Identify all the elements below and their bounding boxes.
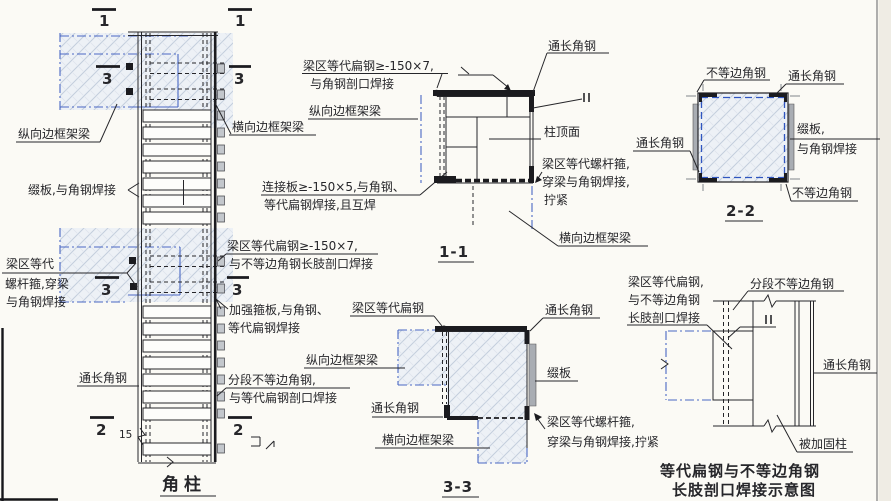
title-text: 2-2 — [726, 202, 756, 220]
label-text: 纵向边框架梁 — [306, 352, 378, 367]
label-text: 纵向边框架梁 — [309, 103, 381, 118]
section-marker-3-top-left: 3 — [102, 70, 112, 88]
label-text: 纵向边框架梁 — [18, 126, 90, 141]
section-marker-1-left: 1 — [99, 12, 109, 30]
title-text-l2: 长肢剖口焊接示意图 — [672, 481, 816, 499]
section-marker-3-mid-left: 3 — [101, 281, 111, 299]
label-text-l2: 等代扁钢焊接,且互焊 — [264, 197, 376, 212]
section-marker-1-right: 1 — [235, 12, 245, 30]
section-marker-2-left: 2 — [96, 421, 106, 439]
label-unequal-angle-bottom: 不等边角钢 — [786, 184, 858, 201]
label-text-l3: 与角钢焊接 — [6, 294, 66, 309]
title-weld-schematic: 等代扁钢与不等边角钢 长肢剖口焊接示意图 — [660, 462, 820, 499]
label-text-l1: 分段不等边角钢, — [228, 372, 316, 387]
dim-15: 15 — [119, 429, 132, 441]
label-text-l1: 梁区等代扁钢, — [628, 274, 704, 289]
label-text-l1: 加强箍板,与角钢、 — [229, 302, 329, 317]
title-text: 角柱 — [162, 474, 206, 495]
label-text-l2: 穿梁与角钢焊接,拧紧 — [547, 434, 659, 449]
label-text: 通长角钢 — [636, 136, 684, 150]
label-text: 横向边框架梁 — [232, 119, 304, 134]
label-text-l1: 梁区等代螺杆箍, — [542, 156, 630, 171]
technical-drawing-page: 1 1 3 3 3 3 2 2 15 纵向边框架梁 缀板,与角钢焊接 梁区等代 … — [0, 0, 891, 501]
label-column-top: 柱顶面 — [544, 124, 580, 139]
label-full-length-angle: 通长角钢 — [813, 358, 877, 373]
label-text: 通长角钢 — [79, 371, 127, 385]
label-text: 横向边框架梁 — [382, 432, 454, 447]
title-text: 1-1 — [439, 243, 469, 261]
title-text: 3-3 — [443, 478, 473, 496]
label-text-l1: 梁区等代扁钢≥-150×7, — [303, 58, 434, 73]
label-text-l2: 与角钢焊接 — [797, 141, 857, 156]
label-text-l1: 缀板, — [797, 122, 825, 136]
label-text: 通长角钢 — [823, 358, 871, 372]
label-text-l1: 梁区等代 — [6, 256, 54, 271]
column-section-hatched — [698, 93, 788, 182]
label-text-l3: 长肢剖口焊接 — [628, 310, 700, 325]
label-text-l1: 梁区等代扁钢≥-150×7, — [227, 238, 358, 253]
label-text: 梁区等代扁钢 — [352, 300, 424, 315]
label-text: 通长角钢 — [545, 303, 593, 317]
title-section-1-1: 1-1 — [438, 243, 474, 262]
label-text: 通长角钢 — [548, 39, 596, 53]
label-text-l2: 与不等边角钢长肢剖口焊接 — [229, 256, 373, 271]
label-text-l1: 梁区等代螺杆箍, — [547, 414, 635, 429]
bolt-dot — [433, 90, 439, 96]
label-text: 缀板,与角钢焊接 — [28, 182, 116, 197]
section-marker-3-top-right: 3 — [234, 70, 244, 88]
section-marker-2-right: 2 — [233, 421, 243, 439]
label-text-l1: 连接板≥-150×5,与角钢、 — [262, 179, 405, 194]
label-text-l2: 螺杆箍,穿梁 — [5, 276, 69, 291]
label-text: 不等边角钢 — [792, 186, 852, 200]
page-edge-right-shade — [879, 0, 891, 501]
label-text: 通长角钢 — [788, 69, 836, 83]
label-text: 被加固柱 — [799, 436, 847, 451]
structural-detail-drawing: 1 1 3 3 3 3 2 2 15 纵向边框架梁 缀板,与角钢焊接 梁区等代 … — [0, 0, 891, 501]
label-flat-steel-weld: 梁区等代扁钢≥-150×7, 与不等边角钢长肢剖口焊接 — [218, 238, 378, 271]
label-text-l3: 拧紧 — [544, 193, 568, 207]
label-text: 柱顶面 — [544, 124, 580, 139]
label-text-l2: 等代扁钢焊接 — [228, 320, 300, 335]
label-text: 不等边角钢 — [706, 66, 766, 80]
bolt-dot — [441, 326, 447, 332]
label-text-l2: 与等代扁钢剖口焊接 — [229, 390, 337, 405]
label-text: 缀板 — [547, 366, 571, 380]
batten-plate-side — [529, 344, 536, 406]
label-text: 横向边框架梁 — [559, 230, 631, 245]
section-marker-3-mid-right: 3 — [232, 281, 242, 299]
title-text-l1: 等代扁钢与不等边角钢 — [660, 462, 820, 480]
label-text-l2: 与角钢剖口焊接 — [310, 76, 394, 91]
label-text: 通长角钢 — [371, 401, 419, 415]
label-text-l2: 与不等边角钢 — [628, 293, 700, 307]
label-text: 分段不等边角钢 — [750, 276, 834, 291]
label-text-l2: 穿梁与角钢焊接, — [542, 174, 630, 189]
